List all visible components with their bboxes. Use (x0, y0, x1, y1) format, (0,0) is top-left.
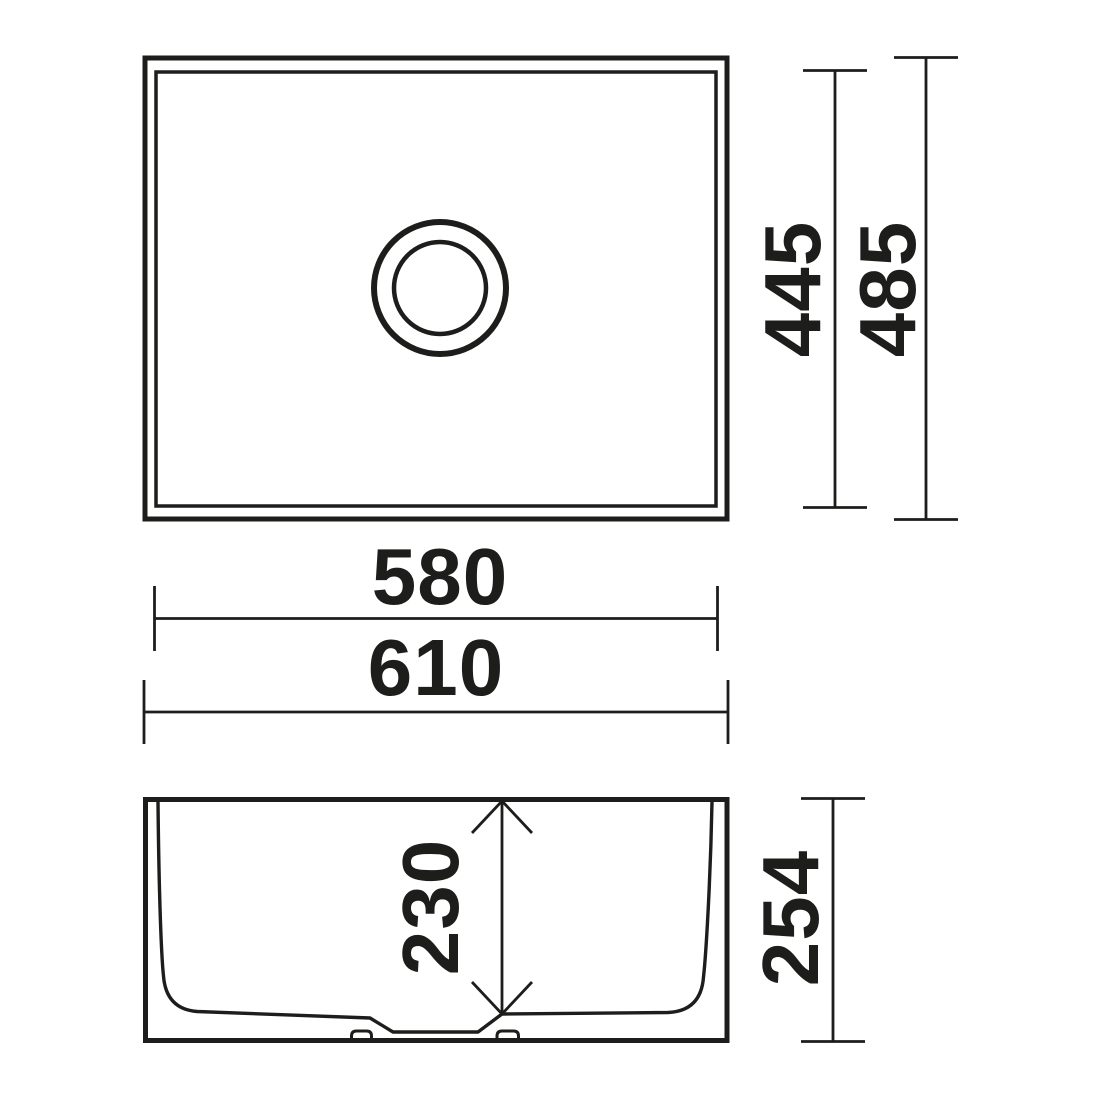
drain-tab-right (497, 1031, 519, 1038)
bowl-depth-dimension: 230 (386, 801, 532, 1014)
dim-label-overall-height: 254 (746, 850, 835, 986)
overall-height-dimension: 254 (746, 798, 865, 1042)
plan-outer-rim (145, 58, 727, 519)
sink-technical-drawing: 445 485 580 610 230 (0, 0, 1100, 1100)
dim-label-inner-width: 580 (372, 532, 508, 621)
dim-label-bowl-depth: 230 (386, 839, 475, 975)
dim-label-outer-width: 610 (368, 623, 504, 712)
plan-inner-rim (156, 72, 716, 506)
dim-label-inner-height: 445 (748, 221, 837, 357)
plan-width-dimensions: 580 610 (143, 532, 729, 744)
dim-label-outer-height: 485 (843, 221, 932, 357)
plan-view (145, 58, 727, 519)
drain-inner-circle (394, 242, 486, 334)
plan-height-dimensions: 445 485 (748, 57, 958, 520)
drain-tab-left (352, 1031, 372, 1038)
